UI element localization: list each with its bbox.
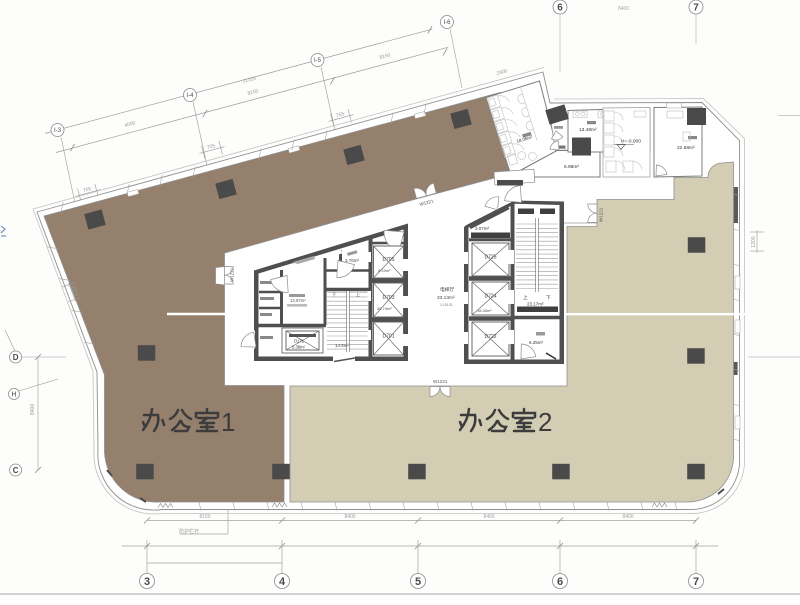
svg-text:W1221: W1221 [599, 207, 604, 222]
svg-text:上: 上 [523, 294, 528, 300]
svg-text:6: 6 [557, 576, 563, 588]
svg-text:D: D [13, 353, 19, 362]
svg-text:7: 7 [693, 3, 699, 14]
svg-text:3.07m²: 3.07m² [475, 226, 490, 231]
svg-text:8400: 8400 [30, 404, 36, 415]
svg-text:1: 1 [221, 407, 235, 437]
svg-text:8400: 8400 [622, 514, 633, 520]
svg-text:下: 下 [332, 292, 336, 297]
svg-text:3: 3 [144, 576, 150, 588]
svg-text:W1221: W1221 [433, 379, 448, 384]
svg-text:6.98m²: 6.98m² [564, 164, 579, 170]
svg-text:D171: D171 [294, 339, 305, 344]
svg-text:D722: D722 [485, 334, 497, 340]
svg-text:I-6: I-6 [443, 20, 451, 26]
svg-text:38.74m²: 38.74m² [377, 306, 392, 311]
svg-text:D705: D705 [383, 257, 395, 263]
svg-text:8400: 8400 [483, 514, 494, 520]
svg-text:22.58m²: 22.58m² [677, 145, 695, 151]
svg-text:6.25m²: 6.25m² [529, 340, 544, 345]
svg-text:上: 上 [356, 291, 360, 297]
svg-text:7: 7 [693, 576, 699, 588]
svg-text:5: 5 [415, 576, 421, 588]
svg-text:D724: D724 [485, 294, 497, 300]
svg-text:33.13m²: 33.13m² [437, 295, 455, 301]
svg-text:1200: 1200 [751, 236, 757, 247]
svg-text:I-4: I-4 [186, 93, 194, 99]
svg-text:23.17m²: 23.17m² [527, 302, 544, 307]
svg-text:H=-0.000: H=-0.000 [621, 139, 641, 145]
svg-text:防护栏杆: 防护栏杆 [179, 528, 199, 535]
svg-text:14.5m²: 14.5m² [335, 343, 350, 348]
svg-text:1:10131: 1:10131 [440, 303, 453, 307]
svg-text:8.15m²: 8.15m² [378, 268, 391, 273]
svg-text:电梯厅: 电梯厅 [440, 286, 455, 293]
svg-text:I-5: I-5 [314, 58, 322, 64]
svg-text:2: 2 [538, 407, 552, 437]
svg-text:16.45m²: 16.45m² [477, 308, 492, 313]
svg-text:13.48m²: 13.48m² [579, 127, 597, 133]
svg-text:W1221: W1221 [230, 267, 235, 282]
svg-text:D701: D701 [383, 334, 395, 340]
svg-text:H: H [11, 392, 16, 399]
svg-text:C: C [13, 466, 19, 475]
svg-text:13.97m²: 13.97m² [290, 298, 306, 303]
svg-text:5.36m²: 5.36m² [292, 345, 306, 350]
svg-text:D703: D703 [383, 295, 395, 301]
svg-text:6: 6 [557, 3, 563, 14]
svg-text:8150: 8150 [199, 514, 210, 520]
svg-text:4: 4 [279, 576, 286, 588]
svg-text:3.76m²: 3.76m² [345, 258, 360, 263]
svg-text:D725: D725 [485, 255, 497, 261]
svg-text:I-3: I-3 [54, 128, 62, 134]
svg-text:8400: 8400 [344, 514, 355, 520]
svg-text:8400: 8400 [618, 6, 629, 12]
